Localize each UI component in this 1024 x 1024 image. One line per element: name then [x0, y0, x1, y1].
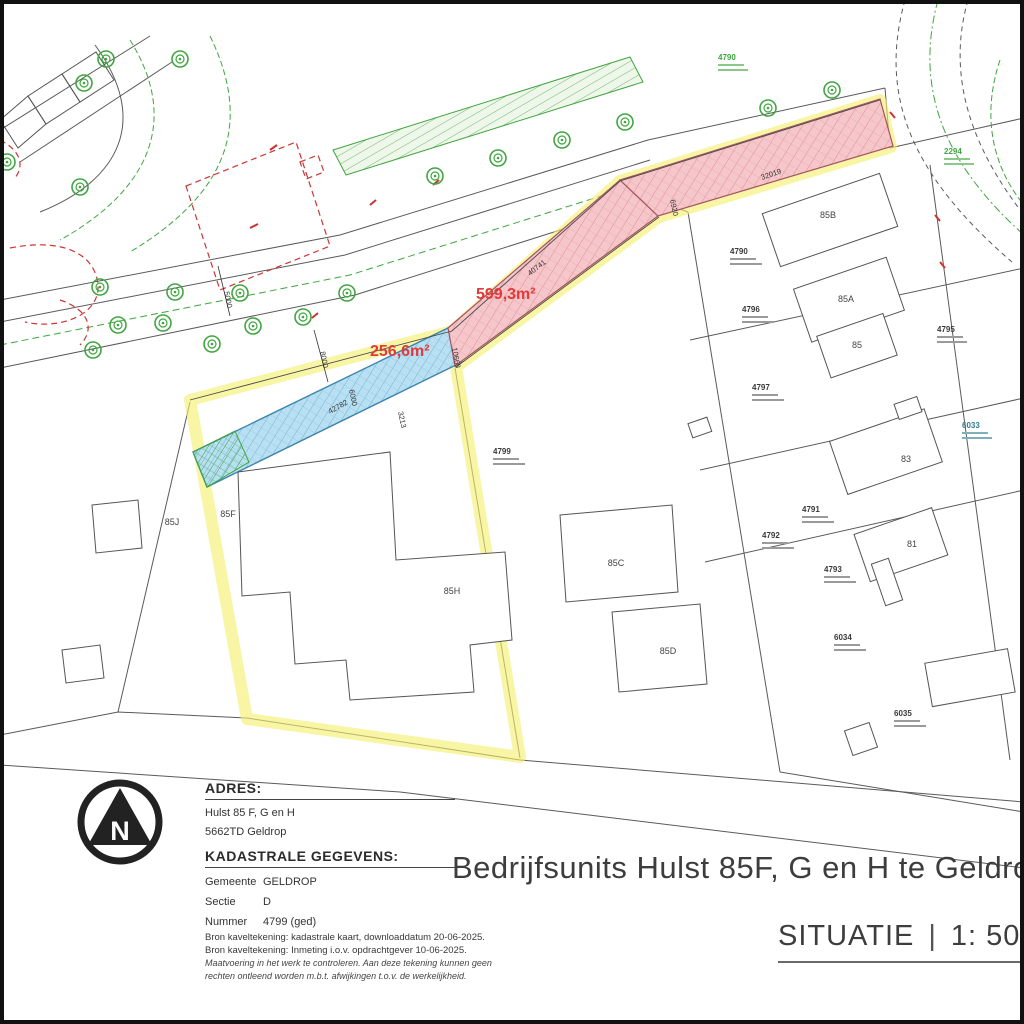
area-label-blue: 256,6m² [370, 343, 430, 360]
building-label: 85C [608, 558, 625, 568]
address-line2: 5662TD Geldrop [205, 826, 455, 838]
parcel-label: 4790 [730, 247, 748, 256]
parcel-label: 4795 [937, 325, 955, 334]
scale-separator: | [928, 920, 937, 952]
building-label: 83 [901, 454, 911, 464]
parcel-label: 4799 [493, 447, 511, 456]
situatie-scale: SITUATIE|1: 500 [778, 920, 1024, 963]
parcel-label: 6033 [962, 421, 980, 430]
cadastral-block: KADASTRALE GEGEVENS: Gemeente GELDROP Se… [205, 848, 455, 928]
parcel-label: 4790 [718, 53, 736, 62]
parcel-label: 4796 [742, 305, 760, 314]
parcel-label: 4793 [824, 565, 842, 574]
building-label: 81 [907, 539, 917, 549]
source-line1: Bron kaveltekening: kadastrale kaart, do… [205, 932, 492, 945]
building-label: 85H [444, 586, 461, 596]
address-heading: ADRES: [205, 780, 455, 800]
drawing-title: Bedrijfsunits Hulst 85F, G en H te Geldr… [452, 850, 1024, 886]
dimension-label: 3213 [396, 411, 408, 429]
parcel-label: 6035 [894, 709, 912, 718]
area-label-pink: 599,3m² [476, 286, 536, 303]
source-notes: Bron kaveltekening: kadastrale kaart, do… [205, 932, 492, 982]
buildings-right [688, 173, 1015, 755]
disclaimer-line2: rechten ontleend worden m.b.t. afwijking… [205, 970, 492, 983]
cadastral-heading: KADASTRALE GEGEVENS: [205, 848, 455, 868]
cadastral-row: Gemeente GELDROP [205, 876, 455, 888]
situatie-label: SITUATIE [778, 920, 914, 952]
parcel-label: 2294 [944, 147, 962, 156]
neighbour-buildings-topleft [0, 52, 114, 148]
address-line1: Hulst 85 F, G en H [205, 807, 455, 819]
building-label: 85 [852, 340, 862, 350]
cadastral-row-label: Sectie [205, 896, 263, 908]
cadastral-row: Nummer 4799 (ged) [205, 916, 455, 928]
scale-value: 1: 500 [951, 920, 1024, 952]
north-arrow-icon: N [81, 783, 159, 861]
cadastral-row-value: GELDROP [263, 876, 317, 888]
building-label: 85B [820, 210, 836, 220]
verge-hatched-band [333, 57, 643, 175]
cadastral-row-label: Nummer [205, 916, 263, 928]
cadastral-row-label: Gemeente [205, 876, 263, 888]
cadastral-row-value: 4799 (ged) [263, 916, 316, 928]
cadastral-row-value: D [263, 896, 271, 908]
building-label: 85A [838, 294, 854, 304]
survey-red-dashed [0, 140, 330, 345]
building-label: 85J [165, 517, 180, 527]
parcel-label: 4791 [802, 505, 820, 514]
north-label: N [110, 816, 130, 846]
parcel-label: 6034 [834, 633, 852, 642]
parcel-label: 4797 [752, 383, 770, 392]
cadastral-situation-sheet: { "page": { "title": "Bedrijfsunits Huls… [0, 0, 1024, 1024]
disclaimer-line1: Maatvoering in het werk te controleren. … [205, 957, 492, 970]
building-label: 85F [220, 509, 236, 519]
source-line2: Bron kaveltekening: Inmeting i.o.v. opdr… [205, 945, 492, 958]
parcel-label: 4792 [762, 531, 780, 540]
cadastral-row: Sectie D [205, 896, 455, 908]
building-label: 85D [660, 646, 677, 656]
address-block: ADRES: Hulst 85 F, G en H 5662TD Geldrop [205, 780, 455, 838]
buildings-center [62, 452, 707, 700]
